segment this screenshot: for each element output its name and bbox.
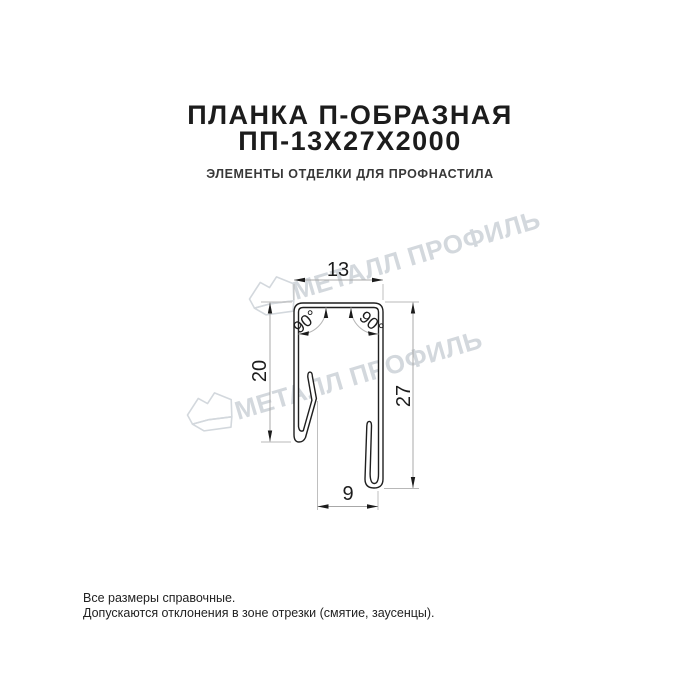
arrowhead-right	[367, 504, 378, 508]
dimension-label-left: 20	[249, 360, 271, 382]
dimension-label-top: 13	[327, 259, 349, 281]
dimension-label-bottom: 9	[342, 483, 353, 505]
watermark-lower: МЕТАЛЛ ПРОФИЛЬ	[184, 324, 486, 435]
arrowhead-up	[349, 308, 353, 318]
arrowhead-left	[318, 504, 329, 508]
arrowhead-up	[324, 308, 328, 318]
footer-note-2: Допускаются отклонения в зоне отрезки (с…	[83, 606, 435, 621]
metal-profile-logo-icon	[184, 390, 237, 436]
dimension-right-height: 27	[384, 302, 419, 489]
arrowhead-down	[411, 477, 415, 488]
arrowhead-down	[268, 431, 272, 442]
watermark-text-upper: МЕТАЛЛ ПРОФИЛЬ	[289, 204, 544, 306]
arrowhead-up	[411, 303, 415, 314]
svg-text:МЕТАЛЛ ПРОФИЛЬ: МЕТАЛЛ ПРОФИЛЬ	[289, 204, 544, 306]
dimension-label-right: 27	[393, 385, 415, 407]
footer-note-1: Все размеры справочные.	[83, 591, 435, 606]
footer-notes: Все размеры справочные. Допускаются откл…	[83, 591, 435, 620]
